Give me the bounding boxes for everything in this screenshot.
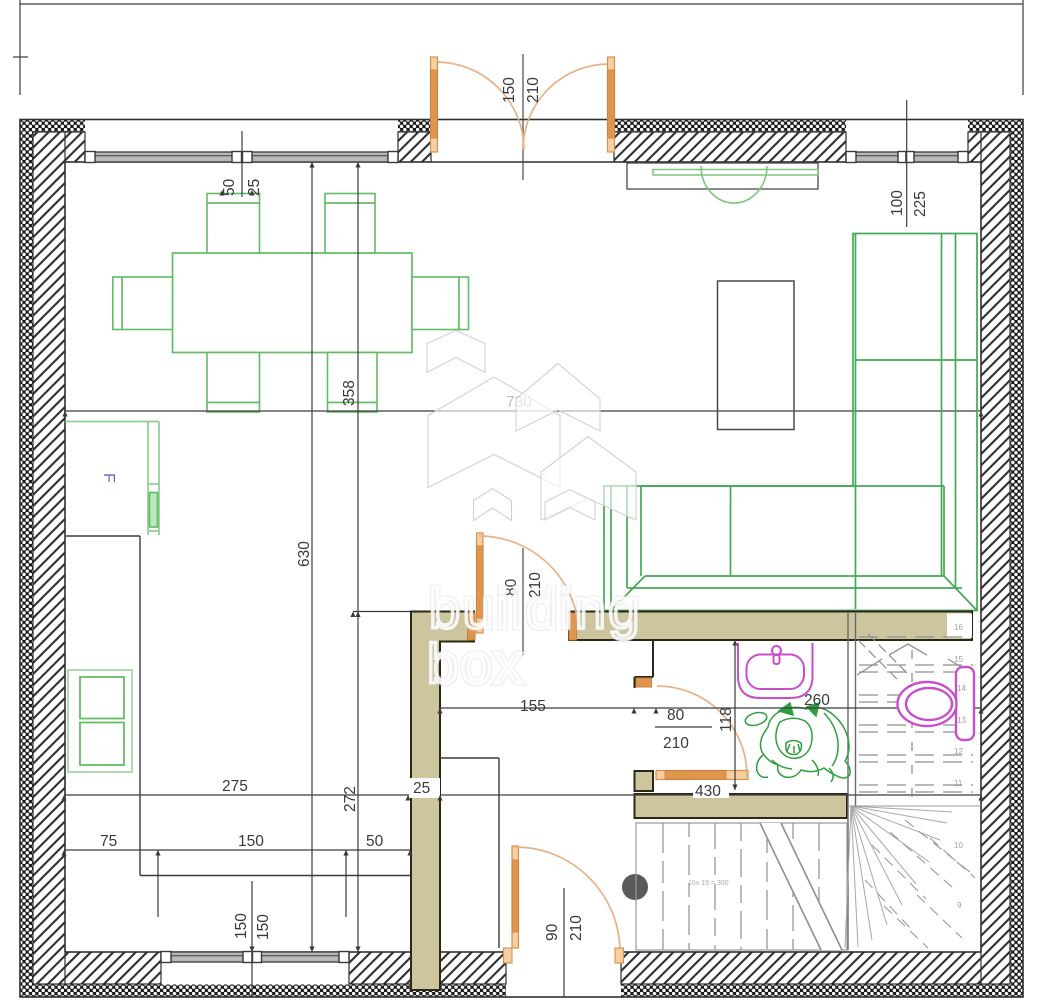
svg-text:16: 16 <box>954 623 963 632</box>
svg-text:150: 150 <box>501 77 518 103</box>
svg-text:358: 358 <box>341 380 358 406</box>
svg-text:150: 150 <box>238 833 264 850</box>
svg-text:14: 14 <box>957 684 966 693</box>
svg-text:260: 260 <box>804 692 830 709</box>
svg-text:150: 150 <box>233 913 250 939</box>
svg-text:118: 118 <box>718 707 735 732</box>
svg-text:11: 11 <box>954 779 963 788</box>
svg-text:272: 272 <box>342 786 359 812</box>
svg-text:155: 155 <box>520 698 546 715</box>
svg-text:150: 150 <box>255 914 272 940</box>
svg-text:75: 75 <box>100 833 117 850</box>
svg-text:275: 275 <box>222 778 248 795</box>
svg-text:80: 80 <box>667 707 685 724</box>
svg-text:210: 210 <box>663 735 689 752</box>
svg-text:9: 9 <box>957 901 962 910</box>
svg-text:25: 25 <box>413 780 430 797</box>
svg-text:225: 225 <box>912 191 929 217</box>
svg-text:15: 15 <box>954 655 963 664</box>
svg-text:building: building <box>429 577 642 640</box>
svg-text:210: 210 <box>525 77 542 103</box>
svg-text:12: 12 <box>954 747 963 756</box>
svg-text:16x 19 = 300: 16x 19 = 300 <box>688 880 729 887</box>
svg-text:50: 50 <box>366 833 384 850</box>
svg-text:630: 630 <box>296 541 313 567</box>
svg-text:25: 25 <box>246 179 263 196</box>
svg-text:210: 210 <box>568 915 585 941</box>
svg-text:90: 90 <box>544 923 561 941</box>
svg-text:10: 10 <box>954 841 963 850</box>
svg-text:box: box <box>427 632 525 695</box>
svg-text:430: 430 <box>695 783 721 800</box>
svg-text:F: F <box>100 473 117 483</box>
svg-text:13: 13 <box>957 716 966 725</box>
svg-text:100: 100 <box>889 190 906 216</box>
